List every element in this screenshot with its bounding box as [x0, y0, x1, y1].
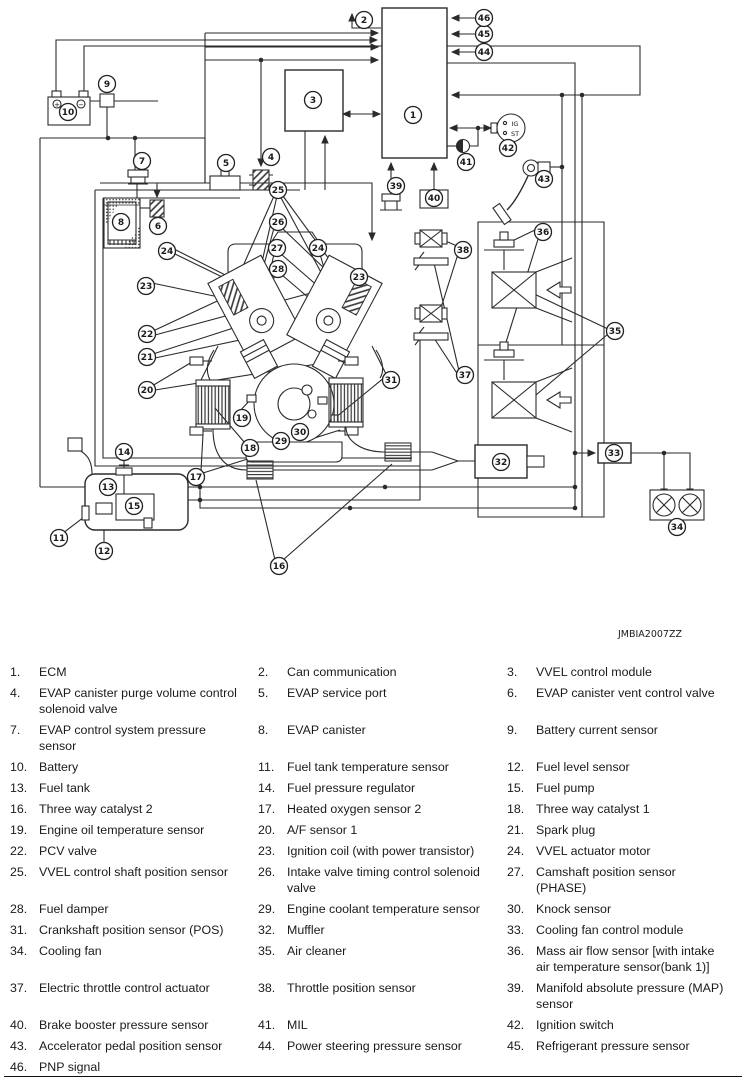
- legend-item-number: 46.: [10, 1059, 39, 1075]
- legend-item-number: 44.: [258, 1038, 287, 1054]
- callout-26: 26: [270, 214, 287, 231]
- legend-item-number: 21.: [507, 822, 536, 838]
- ignition-ig-label: IG: [512, 120, 519, 128]
- legend-item-number: 22.: [10, 843, 39, 859]
- legend-item: 16.Three way catalyst 2: [10, 801, 256, 817]
- svg-text:7: 7: [139, 157, 145, 167]
- legend: 1.ECM2.Can communication3.VVEL control m…: [0, 650, 746, 1075]
- coolant-temp-sensor: [318, 397, 327, 404]
- legend-item-number: 37.: [10, 980, 39, 996]
- legend-item-label: EVAP canister: [287, 722, 505, 738]
- legend-item: 27.Camshaft position sensor (PHASE): [507, 864, 738, 896]
- callout-15: 15: [126, 498, 143, 515]
- svg-text:8: 8: [118, 218, 124, 228]
- legend-item-label: Muffler: [287, 922, 505, 938]
- legend-item: 39.Manifold absolute pressure (MAP) sens…: [507, 980, 738, 1012]
- legend-item-label: Three way catalyst 2: [39, 801, 256, 817]
- legend-item-label: MIL: [287, 1017, 505, 1033]
- legend-item-label: Camshaft position sensor (PHASE): [536, 864, 738, 896]
- legend-item: 10.Battery: [10, 759, 256, 775]
- legend-item-label: Ignition switch: [536, 1017, 738, 1033]
- legend-item-label: Air cleaner: [287, 943, 505, 959]
- legend-item: 3.VVEL control module: [507, 664, 738, 680]
- legend-item-label: Crankshaft position sensor (POS): [39, 922, 256, 938]
- callout-20: 20: [139, 382, 156, 399]
- svg-text:9: 9: [104, 80, 110, 90]
- svg-text:34: 34: [671, 523, 684, 533]
- callout-24: 24: [159, 243, 176, 260]
- legend-item-number: 33.: [507, 922, 536, 938]
- maf-sensor-lower: [484, 342, 524, 380]
- three-way-catalyst-2-right: [385, 443, 411, 461]
- legend-item: 4.EVAP canister purge volume control sol…: [10, 685, 256, 717]
- callout-40: 40: [426, 190, 443, 207]
- legend-item: 8.EVAP canister: [258, 722, 505, 754]
- knock-sensor: [308, 410, 316, 418]
- legend-item-number: 1.: [10, 664, 39, 680]
- legend-item-number: 23.: [258, 843, 287, 859]
- o2-sensor-right: [338, 427, 358, 435]
- legend-item: 1.ECM: [10, 664, 256, 680]
- legend-item-number: 43.: [10, 1038, 39, 1054]
- callout-38: 38: [455, 242, 472, 259]
- legend-item-label: ECM: [39, 664, 256, 680]
- callout-8: 8: [113, 214, 130, 231]
- legend-item: 23.Ignition coil (with power transistor): [258, 843, 505, 859]
- callout-4: 4: [263, 149, 280, 166]
- legend-item-number: 3.: [507, 664, 536, 680]
- legend-item-label: EVAP service port: [287, 685, 505, 701]
- legend-item-label: Engine oil temperature sensor: [39, 822, 256, 838]
- svg-text:12: 12: [98, 547, 111, 557]
- legend-item-label: Engine coolant temperature sensor: [287, 901, 505, 917]
- three-way-catalyst-2-left: [247, 461, 273, 479]
- svg-text:3: 3: [310, 96, 316, 106]
- legend-item-number: 26.: [258, 864, 287, 880]
- callout-13: 13: [100, 479, 117, 496]
- mil-lamp: [457, 140, 470, 153]
- legend-item-label: PNP signal: [39, 1059, 256, 1075]
- diagram-svg: + −: [0, 0, 746, 650]
- svg-text:17: 17: [190, 473, 203, 483]
- svg-text:5: 5: [223, 159, 229, 169]
- legend-item: 7.EVAP control system pressure sensor: [10, 722, 256, 754]
- callout-5: 5: [218, 155, 235, 172]
- wiring-lines: [40, 14, 690, 517]
- svg-text:38: 38: [457, 246, 470, 256]
- legend-item-number: 24.: [507, 843, 536, 859]
- svg-text:6: 6: [155, 222, 161, 232]
- legend-item: 33.Cooling fan control module: [507, 922, 738, 938]
- legend-item-number: 40.: [10, 1017, 39, 1033]
- svg-text:11: 11: [53, 534, 66, 544]
- callout-7: 7: [134, 153, 151, 170]
- three-way-catalyst-1-left: [196, 386, 230, 424]
- legend-item-number: 13.: [10, 780, 39, 796]
- svg-text:26: 26: [272, 218, 285, 228]
- legend-item-number: 12.: [507, 759, 536, 775]
- legend-item: 32.Muffler: [258, 922, 505, 938]
- callout-16: 16: [271, 558, 288, 575]
- legend-item-label: VVEL control shaft position sensor: [39, 864, 256, 880]
- callout-14: 14: [116, 444, 133, 461]
- svg-text:36: 36: [537, 228, 550, 238]
- legend-item-label: Can communication: [287, 664, 505, 680]
- legend-item: 22.PCV valve: [10, 843, 256, 859]
- svg-text:23: 23: [353, 273, 366, 283]
- svg-text:29: 29: [275, 437, 288, 447]
- ignition-switch: IG ST: [491, 114, 525, 142]
- legend-item-number: 4.: [10, 685, 39, 701]
- callout-44: 44: [476, 44, 493, 61]
- callout-25: 25: [270, 182, 287, 199]
- legend-item-label: Cooling fan control module: [536, 922, 738, 938]
- fuel-level-sensor: [96, 503, 112, 514]
- svg-text:2: 2: [361, 16, 367, 26]
- svg-text:25: 25: [272, 186, 285, 196]
- svg-text:14: 14: [118, 448, 131, 458]
- legend-item-number: 45.: [507, 1038, 536, 1054]
- svg-text:43: 43: [538, 175, 551, 185]
- svg-text:30: 30: [294, 428, 307, 438]
- legend-item: 31.Crankshaft position sensor (POS): [10, 922, 256, 938]
- callout-31: 31: [383, 372, 400, 389]
- legend-item-label: Accelerator pedal position sensor: [39, 1038, 256, 1054]
- svg-text:27: 27: [271, 244, 284, 254]
- legend-item-number: 6.: [507, 685, 536, 701]
- svg-text:45: 45: [478, 30, 491, 40]
- svg-text:15: 15: [128, 502, 141, 512]
- legend-item-label: Fuel pump: [536, 780, 738, 796]
- legend-item-label: Manifold absolute pressure (MAP) sensor: [536, 980, 738, 1012]
- svg-text:44: 44: [478, 48, 491, 58]
- legend-item-label: Fuel tank: [39, 780, 256, 796]
- legend-item: 46.PNP signal: [10, 1059, 256, 1075]
- legend-item: 20.A/F sensor 1: [258, 822, 505, 838]
- legend-item-number: 14.: [258, 780, 287, 796]
- svg-text:35: 35: [609, 327, 622, 337]
- svg-text:13: 13: [102, 483, 115, 493]
- callout-24: 24: [310, 240, 327, 257]
- legend-item-label: Electric throttle control actuator: [39, 980, 256, 996]
- fuel-tank-temp-sensor: [82, 506, 89, 520]
- callout-21: 21: [139, 349, 156, 366]
- legend-item: 37.Electric throttle control actuator: [10, 980, 256, 1012]
- legend-item: 21.Spark plug: [507, 822, 738, 838]
- legend-item: 17.Heated oxygen sensor 2: [258, 801, 505, 817]
- svg-text:19: 19: [236, 414, 249, 424]
- legend-item-label: VVEL actuator motor: [536, 843, 738, 859]
- svg-text:4: 4: [268, 153, 274, 163]
- legend-item-number: 31.: [10, 922, 39, 938]
- legend-item-number: 5.: [258, 685, 287, 701]
- svg-text:31: 31: [385, 376, 398, 386]
- callout-18: 18: [242, 440, 259, 457]
- legend-item-label: Fuel level sensor: [536, 759, 738, 775]
- svg-text:21: 21: [141, 353, 154, 363]
- svg-text:22: 22: [141, 330, 154, 340]
- callout-19: 19: [234, 410, 251, 427]
- legend-item-label: Power steering pressure sensor: [287, 1038, 505, 1054]
- legend-item: 44.Power steering pressure sensor: [258, 1038, 505, 1054]
- legend-item-number: 7.: [10, 722, 39, 738]
- legend-item-label: PCV valve: [39, 843, 256, 859]
- callout-35: 35: [607, 323, 624, 340]
- legend-item-number: 2.: [258, 664, 287, 680]
- battery-minus-symbol: −: [78, 101, 84, 109]
- callout-36: 36: [535, 224, 552, 241]
- callout-6: 6: [150, 218, 167, 235]
- legend-item: 36.Mass air flow sensor [with intake air…: [507, 943, 738, 975]
- legend-item-label: EVAP canister purge volume control solen…: [39, 685, 256, 717]
- legend-item: 29.Engine coolant temperature sensor: [258, 901, 505, 917]
- legend-item: 11.Fuel tank temperature sensor: [258, 759, 505, 775]
- map-sensor: [380, 194, 402, 210]
- legend-item-number: 35.: [258, 943, 287, 959]
- callout-29: 29: [273, 433, 290, 450]
- legend-item: 9.Battery current sensor: [507, 722, 738, 754]
- svg-text:1: 1: [410, 111, 416, 121]
- legend-item-number: 19.: [10, 822, 39, 838]
- legend-item-label: A/F sensor 1: [287, 822, 505, 838]
- legend-item-number: 41.: [258, 1017, 287, 1033]
- legend-item-label: Fuel damper: [39, 901, 256, 917]
- legend-item-number: 36.: [507, 943, 536, 959]
- legend-item-label: Fuel tank temperature sensor: [287, 759, 505, 775]
- callout-23: 23: [138, 278, 155, 295]
- legend-item: 24.VVEL actuator motor: [507, 843, 738, 859]
- accelerator-pedal: [493, 160, 550, 224]
- legend-item-number: 42.: [507, 1017, 536, 1033]
- legend-item-label: Battery current sensor: [536, 722, 738, 738]
- ignition-st-label: ST: [511, 130, 519, 138]
- legend-item: 19.Engine oil temperature sensor: [10, 822, 256, 838]
- electric-throttle-actuator-upper: [414, 230, 448, 270]
- callout-3: 3: [305, 92, 322, 109]
- legend-item-label: Throttle position sensor: [287, 980, 505, 996]
- legend-item-number: 38.: [258, 980, 287, 996]
- legend-item: 5.EVAP service port: [258, 685, 505, 717]
- legend-item: 25.VVEL control shaft position sensor: [10, 864, 256, 896]
- legend-item: 28.Fuel damper: [10, 901, 256, 917]
- callout-28: 28: [270, 261, 287, 278]
- figure-code: JMBIA2007ZZ: [617, 629, 683, 640]
- svg-text:23: 23: [140, 282, 153, 292]
- battery-current-sensor: [100, 94, 114, 107]
- legend-item: 6.EVAP canister vent control valve: [507, 685, 738, 717]
- legend-item-label: VVEL control module: [536, 664, 738, 680]
- callout-9: 9: [99, 76, 116, 93]
- service-manual-page: + −: [0, 0, 746, 1079]
- callout-1: 1: [405, 107, 422, 124]
- legend-item: 30.Knock sensor: [507, 901, 738, 917]
- callout-2: 2: [356, 12, 373, 29]
- legend-item: 34.Cooling fan: [10, 943, 256, 975]
- legend-item: 35.Air cleaner: [258, 943, 505, 975]
- legend-item: 41.MIL: [258, 1017, 505, 1033]
- legend-item: 13.Fuel tank: [10, 780, 256, 796]
- legend-item-number: 8.: [258, 722, 287, 738]
- evap-pressure-sensor: [128, 170, 148, 184]
- svg-text:41: 41: [460, 158, 473, 168]
- callout-39: 39: [388, 178, 405, 195]
- svg-text:28: 28: [272, 265, 285, 275]
- legend-item-number: 15.: [507, 780, 536, 796]
- legend-item: 40.Brake booster pressure sensor: [10, 1017, 256, 1033]
- legend-item: 43.Accelerator pedal position sensor: [10, 1038, 256, 1054]
- callout-17: 17: [188, 469, 205, 486]
- svg-text:37: 37: [459, 371, 472, 381]
- callout-37: 37: [457, 367, 474, 384]
- callout-41: 41: [458, 154, 475, 171]
- legend-item: 14.Fuel pressure regulator: [258, 780, 505, 796]
- legend-item-number: 32.: [258, 922, 287, 938]
- legend-item-label: EVAP control system pressure sensor: [39, 722, 256, 754]
- three-way-catalyst-1-right: [329, 384, 363, 422]
- legend-item-label: Mass air flow sensor [with intake air te…: [536, 943, 738, 975]
- svg-text:16: 16: [273, 562, 286, 572]
- svg-text:24: 24: [312, 244, 325, 254]
- callout-12: 12: [96, 543, 113, 560]
- legend-item-label: Brake booster pressure sensor: [39, 1017, 256, 1033]
- legend-item-label: Battery: [39, 759, 256, 775]
- svg-text:10: 10: [62, 108, 75, 118]
- legend-item: 26.Intake valve timing control solenoid …: [258, 864, 505, 896]
- callout-32: 32: [493, 454, 510, 471]
- engine-component-diagram: + −: [0, 0, 746, 650]
- electric-throttle-actuator-lower: [414, 305, 448, 345]
- callout-11: 11: [51, 530, 68, 547]
- legend-item: 38.Throttle position sensor: [258, 980, 505, 1012]
- callout-10: 10: [60, 104, 77, 121]
- svg-text:18: 18: [244, 444, 257, 454]
- evap-vent-control-valve: [150, 200, 164, 217]
- legend-item-number: 17.: [258, 801, 287, 817]
- svg-text:33: 33: [608, 449, 621, 459]
- svg-text:42: 42: [502, 144, 515, 154]
- legend-item-number: 11.: [258, 759, 287, 775]
- oil-temp-sensor: [247, 395, 256, 402]
- svg-text:40: 40: [428, 194, 441, 204]
- legend-item-label: Heated oxygen sensor 2: [287, 801, 505, 817]
- callout-27: 27: [269, 240, 286, 257]
- legend-item-label: Three way catalyst 1: [536, 801, 738, 817]
- bottom-rule: [4, 1076, 742, 1077]
- svg-text:32: 32: [495, 458, 508, 468]
- legend-item: 2.Can communication: [258, 664, 505, 680]
- legend-item-label: Intake valve timing control solenoid val…: [287, 864, 505, 896]
- legend-item-number: 30.: [507, 901, 536, 917]
- callout-33: 33: [606, 445, 623, 462]
- legend-item-label: EVAP canister vent control valve: [536, 685, 738, 701]
- legend-item: 15.Fuel pump: [507, 780, 738, 796]
- callout-45: 45: [476, 26, 493, 43]
- legend-item-number: 25.: [10, 864, 39, 880]
- svg-text:20: 20: [141, 386, 154, 396]
- legend-item-number: 20.: [258, 822, 287, 838]
- callout-23: 23: [351, 269, 368, 286]
- legend-item-label: Knock sensor: [536, 901, 738, 917]
- legend-item-label: Ignition coil (with power transistor): [287, 843, 505, 859]
- legend-item-number: 27.: [507, 864, 536, 880]
- callout-46: 46: [476, 10, 493, 27]
- svg-text:39: 39: [390, 182, 403, 192]
- legend-item-number: 18.: [507, 801, 536, 817]
- legend-item: 12.Fuel level sensor: [507, 759, 738, 775]
- legend-item-number: 28.: [10, 901, 39, 917]
- legend-item-number: 9.: [507, 722, 536, 738]
- cooling-fans: [650, 490, 704, 520]
- legend-item-number: 29.: [258, 901, 287, 917]
- legend-item: 18.Three way catalyst 1: [507, 801, 738, 817]
- svg-text:24: 24: [161, 247, 174, 257]
- callout-34: 34: [669, 519, 686, 536]
- callout-22: 22: [139, 326, 156, 343]
- legend-item-label: Refrigerant pressure sensor: [536, 1038, 738, 1054]
- legend-item-number: 10.: [10, 759, 39, 775]
- legend-item-number: 16.: [10, 801, 39, 817]
- callout-30: 30: [292, 424, 309, 441]
- legend-item: 42.Ignition switch: [507, 1017, 738, 1033]
- legend-item-label: Fuel pressure regulator: [287, 780, 505, 796]
- svg-text:46: 46: [478, 14, 491, 24]
- callout-43: 43: [536, 171, 553, 188]
- battery-plus-symbol: +: [54, 101, 60, 109]
- legend-item-label: Spark plug: [536, 822, 738, 838]
- legend-item-number: 34.: [10, 943, 39, 959]
- callout-42: 42: [500, 140, 517, 157]
- legend-item-number: 39.: [507, 980, 536, 996]
- ecm-box: [382, 8, 447, 158]
- legend-item: 45.Refrigerant pressure sensor: [507, 1038, 738, 1054]
- legend-item-label: Cooling fan: [39, 943, 256, 959]
